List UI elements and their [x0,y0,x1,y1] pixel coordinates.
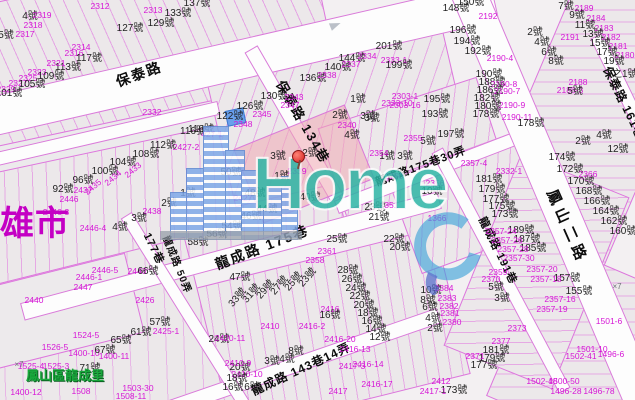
house-number-label: 3號 [397,152,413,162]
house-number-label: 105號 [19,80,46,90]
lot-number-label: 2357-19 [536,305,567,314]
map-pin-icon[interactable] [292,150,306,172]
lot-number-label: 1500-50 [548,377,579,386]
house-number-label: 18號 [226,374,247,384]
cadastral-map[interactable]: 保泰路保泰路 134巷保泰路 161巷龍成路 175巷龍成路175巷30弄龍成路… [0,0,635,400]
lot-number-label: 2427-2 [173,143,199,152]
lot-number-label: 2426 [136,296,155,305]
parcel-labels-layer: 23122313133號137號127號129號4號2319231823175號… [0,0,635,400]
house-number-label: 16號 [222,383,243,393]
house-number-label: 5號 [420,137,436,147]
lot-number-label: 2312 [91,2,110,11]
house-number-label: 173號 [492,210,519,220]
city-label: 雄市 [0,207,70,241]
lot-number-label: 2410-9 [225,359,251,368]
lot-number-label: 2332-1 [496,167,522,176]
lot-number-label: 2337 [342,60,361,69]
lot-number-label: 2425-1 [153,327,179,336]
house-number-label: 3號 [264,357,280,367]
map-pin-stem [297,160,301,169]
house-number-label: 4號 [112,223,128,233]
lot-number-label: 2416-20 [324,335,355,344]
house-number-label: 5號 [0,31,14,41]
house-number-label: 10號 [421,187,442,197]
lot-number-label: 2377 [492,337,511,346]
house-number-label: 1號 [350,95,366,105]
lot-number-label: 1400-12 [10,388,41,397]
house-number-label: 8號 [548,57,564,67]
lot-number-label: 2348 [234,120,253,129]
house-number-label: 47號 [229,273,250,283]
house-number-label: 3號 [270,152,286,162]
lot-number-label: 2371 [466,352,485,361]
house-number-label: 4號 [596,131,612,141]
lot-number-label: 2332 [143,108,162,117]
house-number-label: 137號 [184,0,211,9]
house-number-label: 16號 [319,311,340,321]
lot-number-label: 1526-5 [42,343,68,352]
lot-number-label: 2416-17 [361,380,392,389]
house-number-label: 193號 [422,110,449,120]
lot-number-label: 1524-5 [73,331,99,340]
house-number-label: 195號 [424,95,451,105]
lot-number-label: 2345 [253,110,272,119]
lot-number-label: 2357-30 [503,254,534,263]
house-number-label: 66號 [137,267,158,277]
house-number-label: ×7 [14,361,23,369]
lot-number-label: 1502-41 [565,352,596,361]
house-number-label: 6號 [244,383,260,393]
lot-number-label: 2333-10 [381,99,412,108]
house-number-label: 101號 [0,89,22,99]
house-number-label: 3號 [131,214,147,224]
house-number-label: 8號 [288,347,304,357]
house-number-label: 177號 [471,361,498,371]
lot-number-label: 2446-5 [92,266,118,275]
house-number-label: 58號 [187,238,208,248]
house-number-label: 48號 [244,189,265,199]
lot-number-label: 1496-28 [550,387,581,396]
lot-number-label: 1501-6 [596,317,622,326]
house-number-label: 201號 [376,42,403,52]
lot-number-label: 2447 [74,283,93,292]
lot-number-label: 2190-4 [487,54,513,63]
house-number-label: 129號 [148,19,175,29]
house-number-label: 3號 [494,294,510,304]
lot-number-label: 2417-1 [420,387,446,396]
house-number-label: 61號 [130,328,151,338]
house-number-label: 50號 [220,168,241,178]
lot-number-label: 2440 [25,296,44,305]
lot-number-label: 2355 [404,134,423,143]
house-number-label: 12號 [607,145,628,155]
house-number-label: 4號 [344,131,360,141]
house-number-label: 108號 [133,150,160,160]
lot-number-label: 2357-20 [526,265,557,274]
lot-number-label: 2319 [33,11,52,20]
lot-number-label: 2410 [261,322,280,331]
lot-number-label: 2354 [370,149,389,158]
house-number-label: 7之1號 [606,70,635,80]
lot-number-label: 2350 [385,172,404,181]
house-number-label: 178號 [473,110,500,120]
house-number-label: 196號 [450,26,477,36]
house-number-label: 25號 [326,235,347,245]
lot-number-label: 2446-4 [80,224,106,233]
lot-number-label: 2347 [281,101,300,110]
lot-number-label: 2317 [16,30,35,39]
house-number-label: 2號 [575,137,591,147]
lot-number-label: 2357-4 [461,159,487,168]
lot-number-label: 2192 [479,12,498,21]
lot-number-label: 2321 [47,59,66,68]
lot-number-label: 2417 [329,387,348,396]
lot-number-label: 2340 [338,121,357,130]
lot-number-label: 2358 [306,256,325,265]
lot-number-label: 2446 [60,195,79,204]
house-number-label: 56號 [206,230,227,240]
lot-number-label: 2420-11 [215,334,246,343]
lot-number-label: 2412 [432,377,451,386]
lot-number-label: 1496-78 [583,387,614,396]
house-number-label: 160號 [610,227,635,237]
house-number-label: 174號 [549,153,576,163]
house-number-label: 5號 [488,283,504,293]
lot-number-label: 2191 [561,33,580,42]
lot-number-label: 2416-14 [352,360,383,369]
house-number-label: 6號 [422,303,438,313]
house-number-label: 148號 [443,4,470,14]
house-number-label: ×7 [612,283,621,291]
house-number-label: 12號 [369,333,390,343]
lot-number-label: 2380 [443,318,462,327]
lot-number-label: 1508-11 [116,392,147,400]
lot-number-label: 2313 [144,6,163,15]
house-number-label: 127號 [117,24,144,34]
house-number-label: 197號 [438,130,465,140]
lot-number-label: 427-1 [201,130,223,139]
lot-number-label: 1508 [72,387,91,396]
district-label: 鳳山區龍成里 [26,369,104,382]
house-number-label: 44號 [256,205,277,215]
house-number-label: 23號 [297,267,318,290]
lot-number-label: 2357-18 [530,275,561,284]
house-number-label: 21號 [368,213,389,223]
lot-number-label: 2384 [435,284,454,293]
house-number-label: 2號 [161,199,177,209]
house-number-label: 3號 [360,112,376,122]
lot-number-label: 2190-9 [499,101,525,110]
lot-number-label: 2338 [318,71,337,80]
house-number-label: 1號 [180,189,196,199]
lot-number-label: 2416-13 [339,345,370,354]
house-number-label: 19號 [603,57,624,67]
house-number-label: 199號 [386,61,413,71]
lot-number-label: 1400-11 [99,352,130,361]
house-number-label: 40號 [299,193,320,203]
lot-number-label: 1496-6 [598,350,624,359]
house-number-label: 2號 [427,324,443,334]
lot-number-label: 2373 [508,324,527,333]
house-number-label: 5號 [567,87,583,97]
lot-number-label: 1366 [428,214,447,223]
lot-number-label: 2416-2 [299,322,325,331]
lot-number-label: 2357-16 [544,295,575,304]
lot-number-label: 2366 [579,170,598,179]
house-number-label: 178號 [518,119,545,129]
house-number-label: 20號 [389,243,410,253]
